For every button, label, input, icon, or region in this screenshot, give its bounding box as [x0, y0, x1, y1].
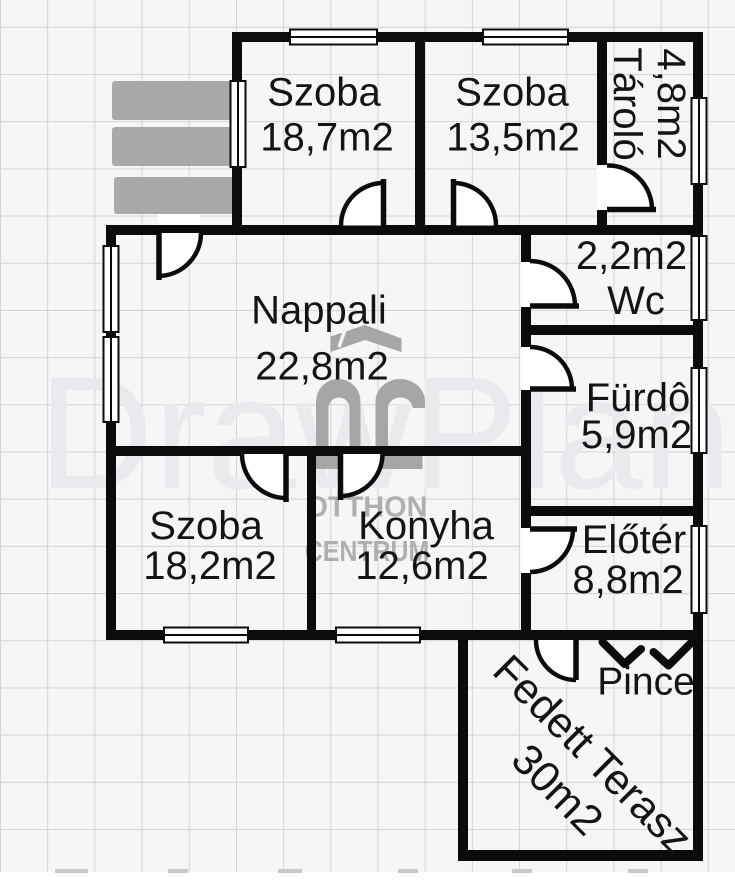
svg-text:Wc: Wc: [607, 279, 665, 323]
svg-text:2,2m2: 2,2m2: [576, 234, 687, 278]
svg-text:Szoba: Szoba: [455, 70, 569, 114]
svg-text:18,2m2: 18,2m2: [143, 544, 276, 588]
svg-text:13,5m2: 13,5m2: [446, 116, 579, 160]
svg-text:8,8m2: 8,8m2: [572, 558, 683, 602]
svg-text:18,7m2: 18,7m2: [260, 116, 393, 160]
svg-text:22,8m2: 22,8m2: [255, 345, 388, 389]
svg-text:Konyha: Konyha: [358, 504, 494, 548]
svg-text:Előtér: Előtér: [582, 518, 687, 562]
svg-text:12,6m2: 12,6m2: [355, 544, 488, 588]
svg-text:Pince: Pince: [597, 661, 695, 704]
svg-text:Szoba: Szoba: [149, 504, 263, 548]
svg-text:4,8m2Tároló: 4,8m2Tároló: [605, 47, 693, 160]
svg-text:5,9m2: 5,9m2: [581, 413, 692, 457]
svg-text:Nappali: Nappali: [251, 289, 387, 333]
svg-text:Szoba: Szoba: [267, 70, 381, 114]
